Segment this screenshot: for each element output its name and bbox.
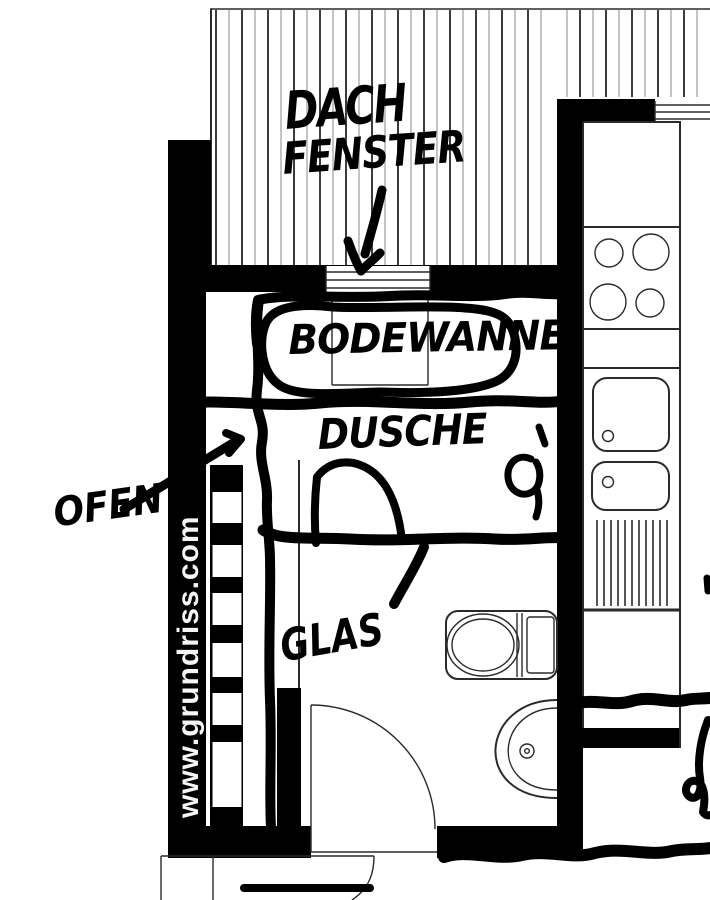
bodewanne-label: BODEWANNE bbox=[288, 315, 565, 361]
stove-burner bbox=[633, 234, 669, 270]
dach-fenster-label-line2: FENSTER bbox=[281, 125, 467, 182]
sketch-divider-line-upper bbox=[177, 401, 562, 405]
kitchen-top-wall bbox=[557, 99, 655, 122]
stove-burner bbox=[590, 284, 626, 320]
washbasin bbox=[495, 700, 557, 798]
bathroom-left-inner-wall bbox=[277, 688, 301, 828]
toilet-bowl-outer bbox=[447, 614, 519, 676]
scribble-tick-right-edge bbox=[707, 578, 708, 591]
toilet bbox=[446, 611, 557, 679]
basin-faucet bbox=[520, 744, 534, 758]
faucet-dot bbox=[603, 477, 614, 488]
stair-step bbox=[213, 643, 242, 677]
sketch-divider-line-lower bbox=[263, 530, 564, 540]
door-swing-arc bbox=[311, 705, 435, 829]
door bbox=[311, 705, 437, 858]
dach-fenster-arrow bbox=[348, 190, 382, 271]
bathroom-right-wall bbox=[557, 100, 583, 858]
o-mark-tick bbox=[539, 427, 545, 444]
kitchen-sink-small bbox=[592, 462, 669, 510]
basin-faucet-dot bbox=[525, 749, 530, 754]
kitchen-counter bbox=[583, 122, 680, 748]
scribble-loop-right-edge bbox=[686, 720, 710, 815]
counter-outline bbox=[583, 122, 680, 748]
stair-step bbox=[213, 742, 242, 807]
kitchen-sink-large bbox=[593, 378, 669, 451]
stair-step bbox=[213, 693, 242, 725]
watermark-text: www.grundriss.com bbox=[172, 458, 206, 818]
stove-burner bbox=[636, 289, 664, 317]
basin-inner bbox=[508, 708, 557, 790]
stair-step bbox=[213, 545, 242, 577]
area-below-bathroom bbox=[161, 856, 374, 900]
o-mark-tail bbox=[536, 490, 539, 517]
stair-ladder bbox=[210, 465, 243, 828]
toilet-outline bbox=[446, 611, 557, 679]
scribble-line-right-mid bbox=[574, 698, 710, 704]
top-right-window bbox=[655, 101, 710, 122]
glas-pointer-line bbox=[394, 547, 424, 604]
kitchen-mid-wall bbox=[583, 728, 680, 748]
skylight-window bbox=[326, 266, 430, 292]
toilet-cistern bbox=[527, 617, 554, 673]
faucet-dot bbox=[603, 431, 614, 442]
shower-o-mark bbox=[508, 427, 545, 517]
lower-curve bbox=[352, 856, 374, 900]
stove bbox=[590, 234, 669, 320]
dusche-label: DUSCHE bbox=[317, 408, 487, 456]
floor-plan-page: DACH FENSTER BODEWANNE DUSCHE GLAS OFEN … bbox=[0, 0, 710, 900]
drainer-ribs bbox=[597, 520, 667, 606]
door-opening bbox=[311, 826, 437, 858]
shower-door-sketch bbox=[315, 462, 402, 543]
arrow-shaft bbox=[365, 190, 382, 254]
stair-step bbox=[213, 492, 242, 523]
toilet-bowl-inner bbox=[452, 619, 514, 671]
stair-step bbox=[213, 593, 242, 625]
stove-burner bbox=[595, 239, 623, 267]
